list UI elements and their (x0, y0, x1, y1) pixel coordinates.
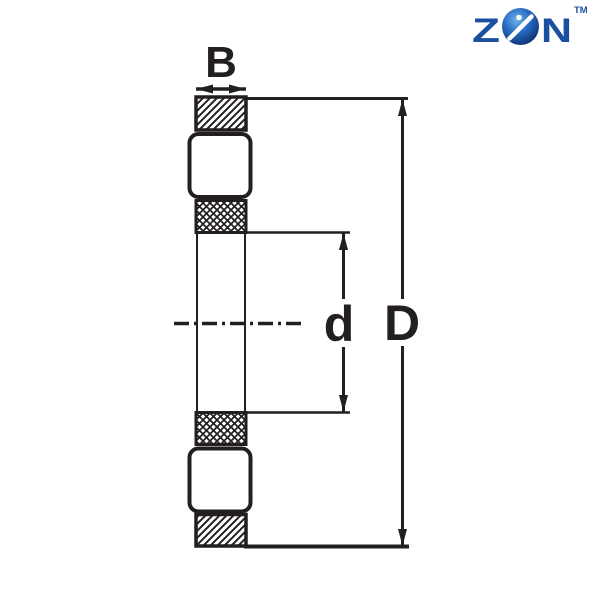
outer-ring-top-section (196, 97, 246, 130)
logo-trademark: TM (574, 5, 588, 16)
arrow-up-icon (398, 99, 407, 116)
dimension-B: B (196, 38, 246, 94)
roller-bottom (190, 449, 251, 512)
inner-ring-bottom-section (196, 413, 246, 445)
screenshot-canvas: B d D Z N TM (0, 0, 600, 600)
zen-logo: Z N TM (472, 5, 588, 50)
logo-letter-z: Z (472, 12, 500, 50)
bearing-cross-section-drawing: B d D Z N TM (0, 0, 600, 600)
arrow-down-icon (339, 395, 348, 412)
logo-letter-n: N (541, 12, 572, 50)
width-label: B (205, 38, 237, 87)
bore-label: d (324, 296, 355, 352)
outer-diameter-label: D (384, 295, 420, 351)
globe-dot-icon (516, 15, 522, 21)
inner-ring-top-section (196, 201, 246, 233)
arrow-down-icon (398, 529, 407, 546)
arrow-up-icon (339, 233, 348, 250)
outer-ring-bottom-section (196, 515, 246, 547)
roller-top (190, 134, 251, 197)
